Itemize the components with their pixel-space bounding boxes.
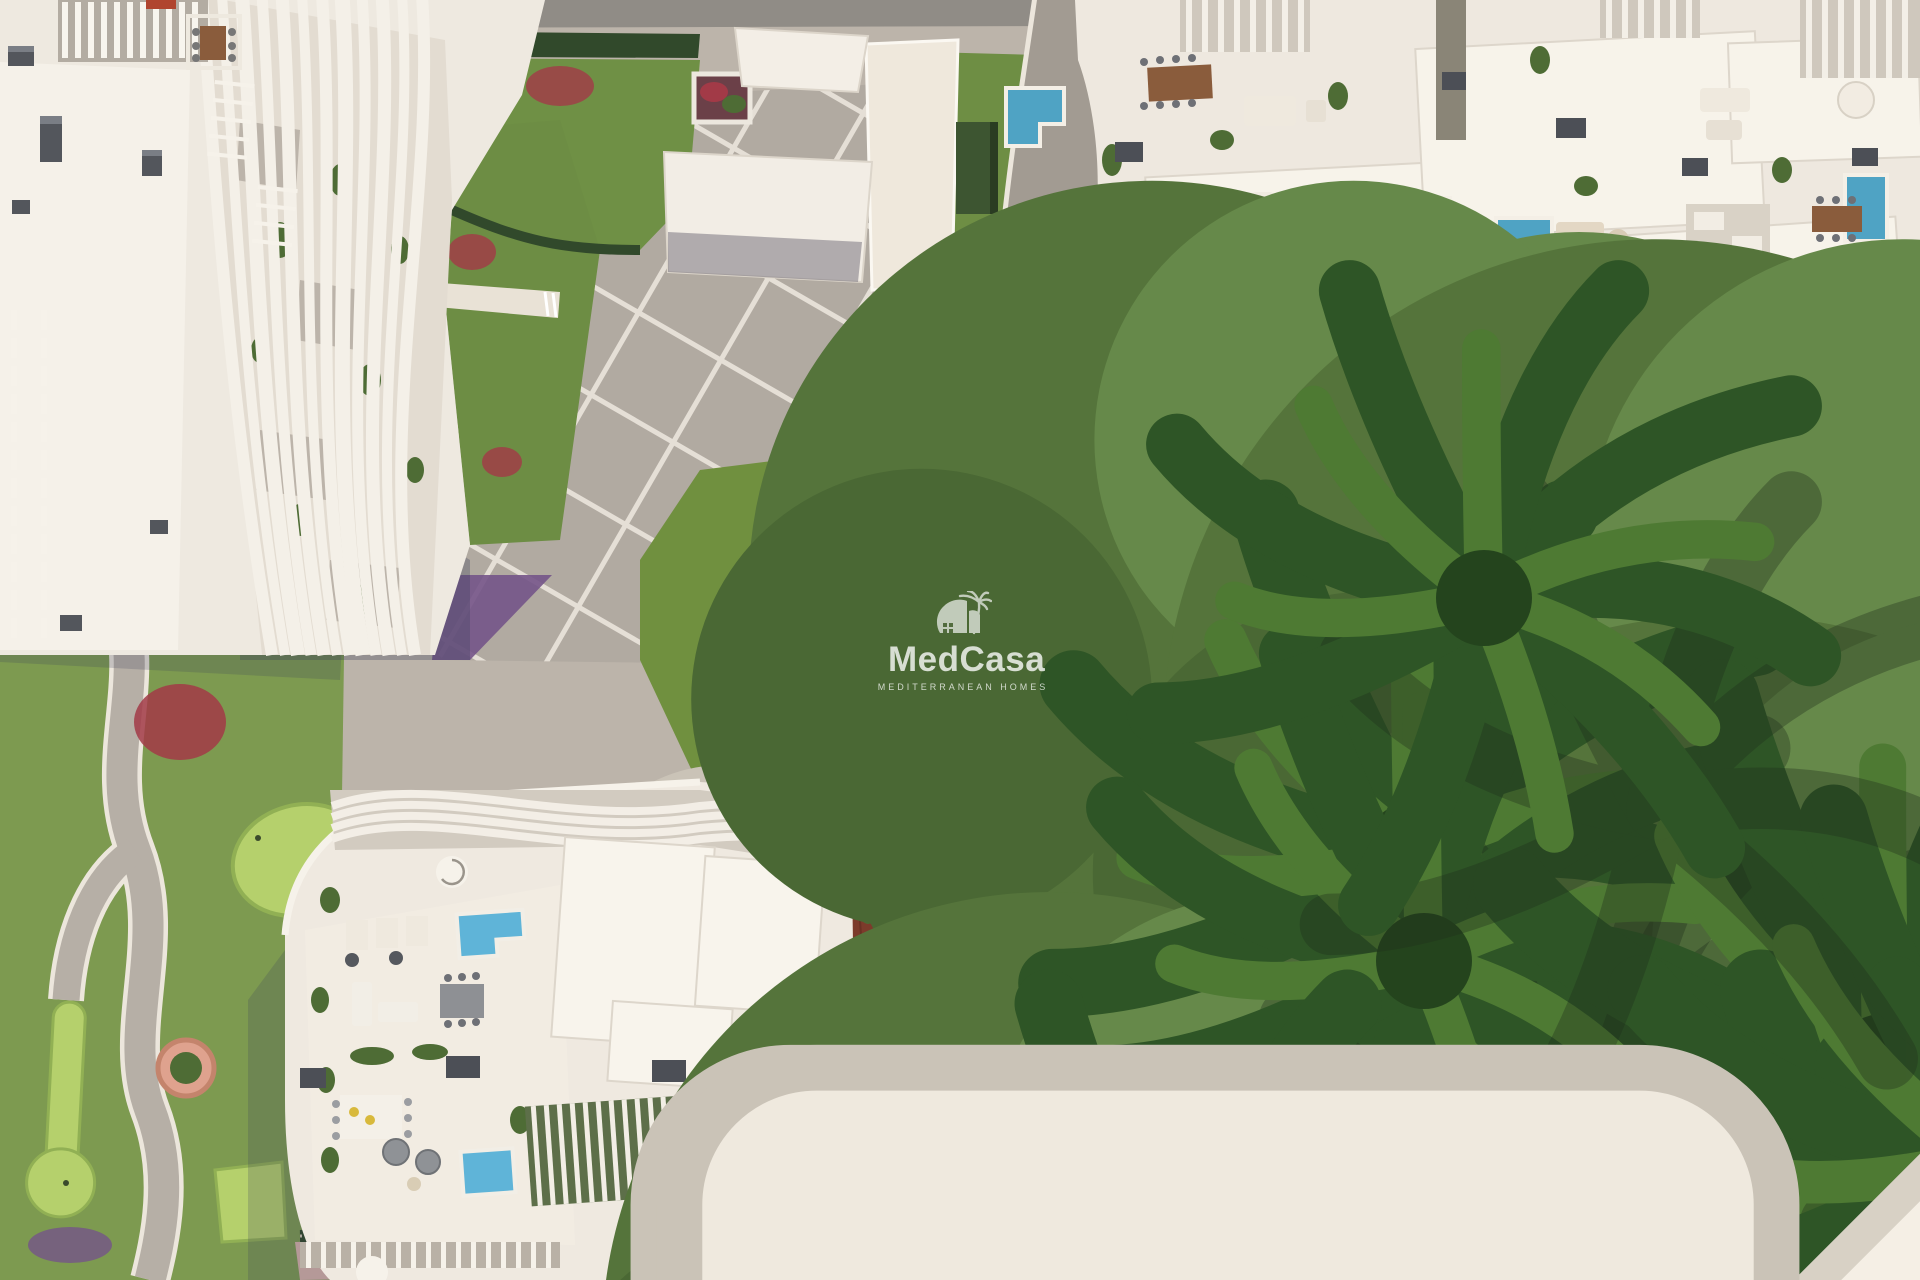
plunge-pool bbox=[461, 1148, 516, 1196]
rattan-chair bbox=[383, 1139, 409, 1165]
rattan-chair bbox=[416, 1150, 440, 1174]
render-canvas bbox=[0, 0, 1920, 1280]
flower-bed-red bbox=[134, 684, 226, 760]
red-awning bbox=[146, 0, 176, 9]
courtyard-gap bbox=[1436, 0, 1466, 140]
parasol bbox=[1838, 82, 1874, 118]
aerial-render-scene: MedCasa MEDITERRANEAN HOMES bbox=[0, 0, 1920, 1280]
